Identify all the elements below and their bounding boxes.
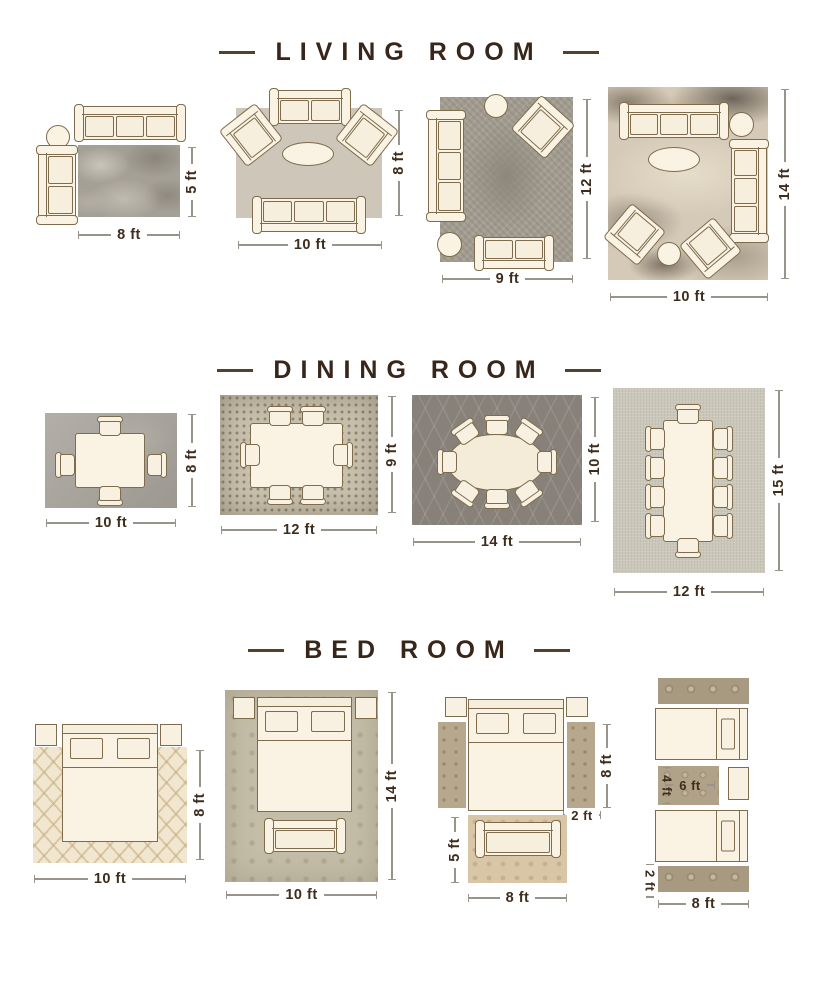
sofa-back [39, 153, 47, 217]
dining-chair [484, 489, 510, 509]
title-dash [248, 649, 284, 652]
foot-rug-height-dimension: 5 ft [448, 817, 462, 883]
side-table [729, 112, 754, 137]
dimension-label: 8 ft [686, 897, 722, 912]
coffee-table [282, 142, 334, 166]
bed-room-diagram-4: 4 ft 6 ft 2 ft 8 ft [643, 676, 773, 911]
dimension-label: 10 ft [88, 872, 132, 887]
living-room-diagram-4: 10 ft 14 ft [608, 87, 808, 305]
section-title-bed-room: BED ROOM [0, 638, 818, 663]
chair-seat [713, 515, 728, 537]
dimension-label: 2 ft [644, 864, 657, 898]
nightstand [233, 697, 255, 719]
height-dimension: 5 ft [185, 147, 199, 217]
sofa-cushion [48, 186, 73, 214]
runner-length-dimension: 8 ft [658, 897, 749, 911]
chair-seat [302, 411, 324, 426]
dining-room-diagram-2: 12 ft 9 ft [220, 395, 398, 535]
height-dimension: 9 ft [385, 396, 399, 513]
dining-chair [267, 406, 293, 426]
bench-back [272, 821, 338, 829]
height-dimension: 15 ft [772, 390, 786, 571]
chair-seat [650, 428, 665, 450]
height-dimension: 12 ft [580, 99, 594, 259]
nightstand [728, 767, 749, 800]
foot-rug-width-dimension: 8 ft [468, 891, 567, 905]
dimension-label: 5 ft [448, 832, 463, 868]
bed [257, 697, 352, 812]
dining-chair [55, 452, 75, 478]
bench-cushion [486, 832, 550, 853]
sofa [622, 104, 726, 138]
dimension-label: 8 ft [392, 145, 407, 181]
sofa-cushion [734, 206, 757, 232]
dining-chair [240, 442, 260, 468]
dining-chair [645, 426, 665, 452]
chair-seat [650, 486, 665, 508]
chair-seat [677, 538, 699, 553]
pillow [311, 711, 344, 732]
dimension-label: 8 ft [193, 787, 208, 823]
chair-seat [650, 515, 665, 537]
runner-rug [567, 722, 595, 808]
headboard [258, 698, 351, 707]
section-title-living-room: LIVING ROOM [0, 40, 818, 65]
dimension-label: 6 ft [673, 779, 707, 792]
chair-seat [486, 420, 508, 435]
headboard [739, 811, 747, 861]
chair-seat [269, 411, 291, 426]
bed-room-diagram-1: 10 ft 8 ft [33, 697, 208, 887]
dining-table [75, 433, 145, 488]
pillow [70, 738, 104, 759]
pillow [523, 713, 557, 734]
sofa-cushion [48, 156, 73, 184]
runner-rug [438, 722, 466, 808]
dining-chair [713, 484, 733, 510]
sofa-cushion [263, 201, 292, 222]
dimension-label: 8 ft [111, 228, 147, 243]
twin-bed [655, 810, 748, 862]
rug-8x5 [78, 145, 180, 217]
dimension-label: 12 ft [580, 157, 595, 201]
dimension-label: 14 ft [475, 535, 519, 550]
width-dimension: 14 ft [413, 535, 581, 549]
sofa-cushion [630, 114, 658, 135]
dining-chair [713, 455, 733, 481]
sofa-cushion [326, 201, 355, 222]
chair-seat [713, 428, 728, 450]
sofa-cushion [485, 240, 513, 259]
nightstand [566, 697, 588, 717]
mattress-line [257, 740, 352, 741]
sofa-cushion [311, 100, 340, 121]
nightstand [355, 697, 377, 719]
sofa [731, 142, 767, 240]
dining-chair [484, 415, 510, 435]
section-title-text: BED ROOM [304, 638, 514, 663]
sofa-back [260, 223, 358, 231]
title-dash [565, 369, 601, 372]
dining-chair [537, 449, 557, 475]
chair-seat [713, 457, 728, 479]
width-dimension: 8 ft [78, 228, 180, 242]
pillow [265, 711, 298, 732]
dimension-label: 10 ft [667, 290, 711, 305]
width-dimension: 9 ft [442, 272, 573, 286]
chair-seat [245, 444, 260, 466]
side-table [657, 242, 681, 266]
sofa-cushion [734, 178, 757, 204]
dimension-label: 10 ft [288, 238, 332, 253]
height-dimension: 8 ft [185, 414, 199, 507]
chair-seat [269, 485, 291, 500]
section-title-dining-room: DINING ROOM [0, 358, 818, 383]
center-rug-width-dimension: 6 ft [665, 778, 715, 792]
width-dimension: 10 ft [238, 238, 382, 252]
sofa [255, 198, 363, 232]
nightstand [160, 724, 182, 746]
bench-cushion [275, 830, 335, 849]
dimension-label: 14 ft [385, 764, 400, 808]
title-dash [534, 649, 570, 652]
sofa-back [758, 147, 766, 235]
dimension-label: 9 ft [385, 437, 400, 473]
chair-seat [60, 454, 75, 476]
rug-size-guide: LIVING ROOM 8 ft 5 ft [0, 0, 818, 1000]
sofa-cushion [438, 152, 461, 181]
section-title-text: LIVING ROOM [275, 40, 542, 65]
dining-chair [97, 486, 123, 506]
sofa-back [277, 91, 343, 99]
twin-bed [655, 708, 748, 760]
runner-rug [658, 866, 749, 892]
section-title-text: DINING ROOM [273, 358, 544, 383]
chair-seat [147, 454, 162, 476]
sofa-cushion [280, 100, 309, 121]
dimension-label: 15 ft [772, 458, 787, 502]
loveseat [477, 237, 551, 269]
sofa-cushion [438, 182, 461, 211]
sofa-back [627, 105, 721, 113]
dining-chair [645, 455, 665, 481]
width-dimension: 10 ft [610, 290, 768, 304]
title-dash [217, 369, 253, 372]
bench [478, 822, 558, 856]
dining-chair [267, 485, 293, 505]
sofa-cushion [515, 240, 543, 259]
dining-chair [97, 416, 123, 436]
chair-seat [677, 409, 699, 424]
height-dimension: 8 ft [193, 750, 207, 860]
sofa-cushion [116, 116, 145, 137]
loveseat [272, 90, 348, 124]
dining-chair [147, 452, 167, 478]
dining-chair [713, 513, 733, 539]
sofa-back [429, 118, 437, 214]
dimension-label: 5 ft [185, 164, 200, 200]
dining-table [663, 420, 713, 542]
bed [62, 724, 158, 842]
dining-room-diagram-1: 10 ft 8 ft [45, 413, 195, 528]
chair-seat [650, 457, 665, 479]
runner-rug [658, 678, 749, 704]
dimension-label: 9 ft [490, 272, 526, 287]
dining-chair [645, 484, 665, 510]
dimension-label: 10 ft [588, 437, 603, 481]
width-dimension: 12 ft [614, 585, 764, 599]
sofa-cushion [690, 114, 718, 135]
dining-chair [675, 404, 701, 424]
living-room-diagram-1: 8 ft 5 ft [30, 100, 210, 255]
side-table [484, 94, 508, 118]
headboard [739, 709, 747, 759]
dining-table [250, 423, 343, 488]
mattress-line [468, 742, 564, 743]
mattress-line [716, 708, 717, 760]
nightstand [35, 724, 57, 746]
dining-chair [713, 426, 733, 452]
height-dimension: 14 ft [778, 89, 792, 279]
dining-chair [437, 449, 457, 475]
bench [267, 820, 343, 852]
dimension-label: 8 ft [500, 891, 536, 906]
dimension-label: 2 ft [565, 809, 599, 822]
height-dimension: 10 ft [588, 397, 602, 522]
living-room-diagram-3: 9 ft 12 ft [428, 94, 598, 289]
dimension-label: 12 ft [277, 523, 321, 538]
chair-seat [486, 489, 508, 504]
chair-seat [99, 486, 121, 501]
chair-seat [537, 451, 552, 473]
mattress-line [716, 810, 717, 862]
dimension-label: 8 ft [600, 748, 615, 784]
nightstand [445, 697, 467, 717]
sofa [428, 113, 464, 219]
title-dash [563, 51, 599, 54]
dining-chair [675, 538, 701, 558]
runner-width-dimension: 2 ft [563, 808, 601, 822]
side-table [437, 232, 462, 257]
sofa [77, 106, 183, 140]
runner-length-dimension: 8 ft [600, 724, 614, 808]
title-dash [219, 51, 255, 54]
dining-chair [333, 442, 353, 468]
chair-seat [713, 486, 728, 508]
pillow [117, 738, 151, 759]
width-dimension: 12 ft [221, 523, 377, 537]
chair-seat [302, 485, 324, 500]
dining-room-diagram-4: 12 ft 15 ft [613, 388, 785, 600]
sofa-cushion [660, 114, 688, 135]
sofa-back [482, 260, 546, 268]
chair-seat [333, 444, 348, 466]
sofa-cushion [438, 121, 461, 150]
height-dimension: 8 ft [392, 110, 406, 216]
dimension-label: 8 ft [185, 443, 200, 479]
dining-chair [300, 406, 326, 426]
pillow [721, 719, 735, 750]
bench-back [483, 823, 553, 831]
width-dimension: 10 ft [46, 516, 176, 530]
dimension-label: 12 ft [667, 585, 711, 600]
runner-width-dimension: 2 ft [643, 864, 657, 894]
pillow [721, 821, 735, 852]
dimension-label: 10 ft [279, 888, 323, 903]
bed [468, 699, 564, 811]
dimension-label: 14 ft [778, 162, 793, 206]
dining-chair [300, 485, 326, 505]
mattress-line [62, 767, 158, 768]
coffee-table [648, 147, 700, 172]
sofa-back [82, 107, 178, 115]
pillow [476, 713, 510, 734]
sofa-cushion [85, 116, 114, 137]
living-room-diagram-2: 10 ft 8 ft [225, 88, 420, 253]
sofa-cushion [294, 201, 323, 222]
sofa-cushion [734, 150, 757, 176]
dimension-label: 10 ft [89, 516, 133, 531]
settee [38, 148, 76, 222]
bed-room-diagram-3: 8 ft 2 ft 5 ft 8 ft [438, 697, 616, 909]
chair-seat [442, 451, 457, 473]
bed-room-diagram-2: 10 ft 14 ft [225, 690, 397, 900]
width-dimension: 10 ft [226, 888, 377, 902]
dining-chair [645, 513, 665, 539]
chair-seat [99, 421, 121, 436]
dining-room-diagram-3: 14 ft 10 ft [412, 395, 604, 547]
headboard [63, 725, 157, 734]
headboard [469, 700, 563, 709]
width-dimension: 10 ft [34, 872, 186, 886]
sofa-cushion [146, 116, 175, 137]
height-dimension: 14 ft [385, 692, 399, 880]
